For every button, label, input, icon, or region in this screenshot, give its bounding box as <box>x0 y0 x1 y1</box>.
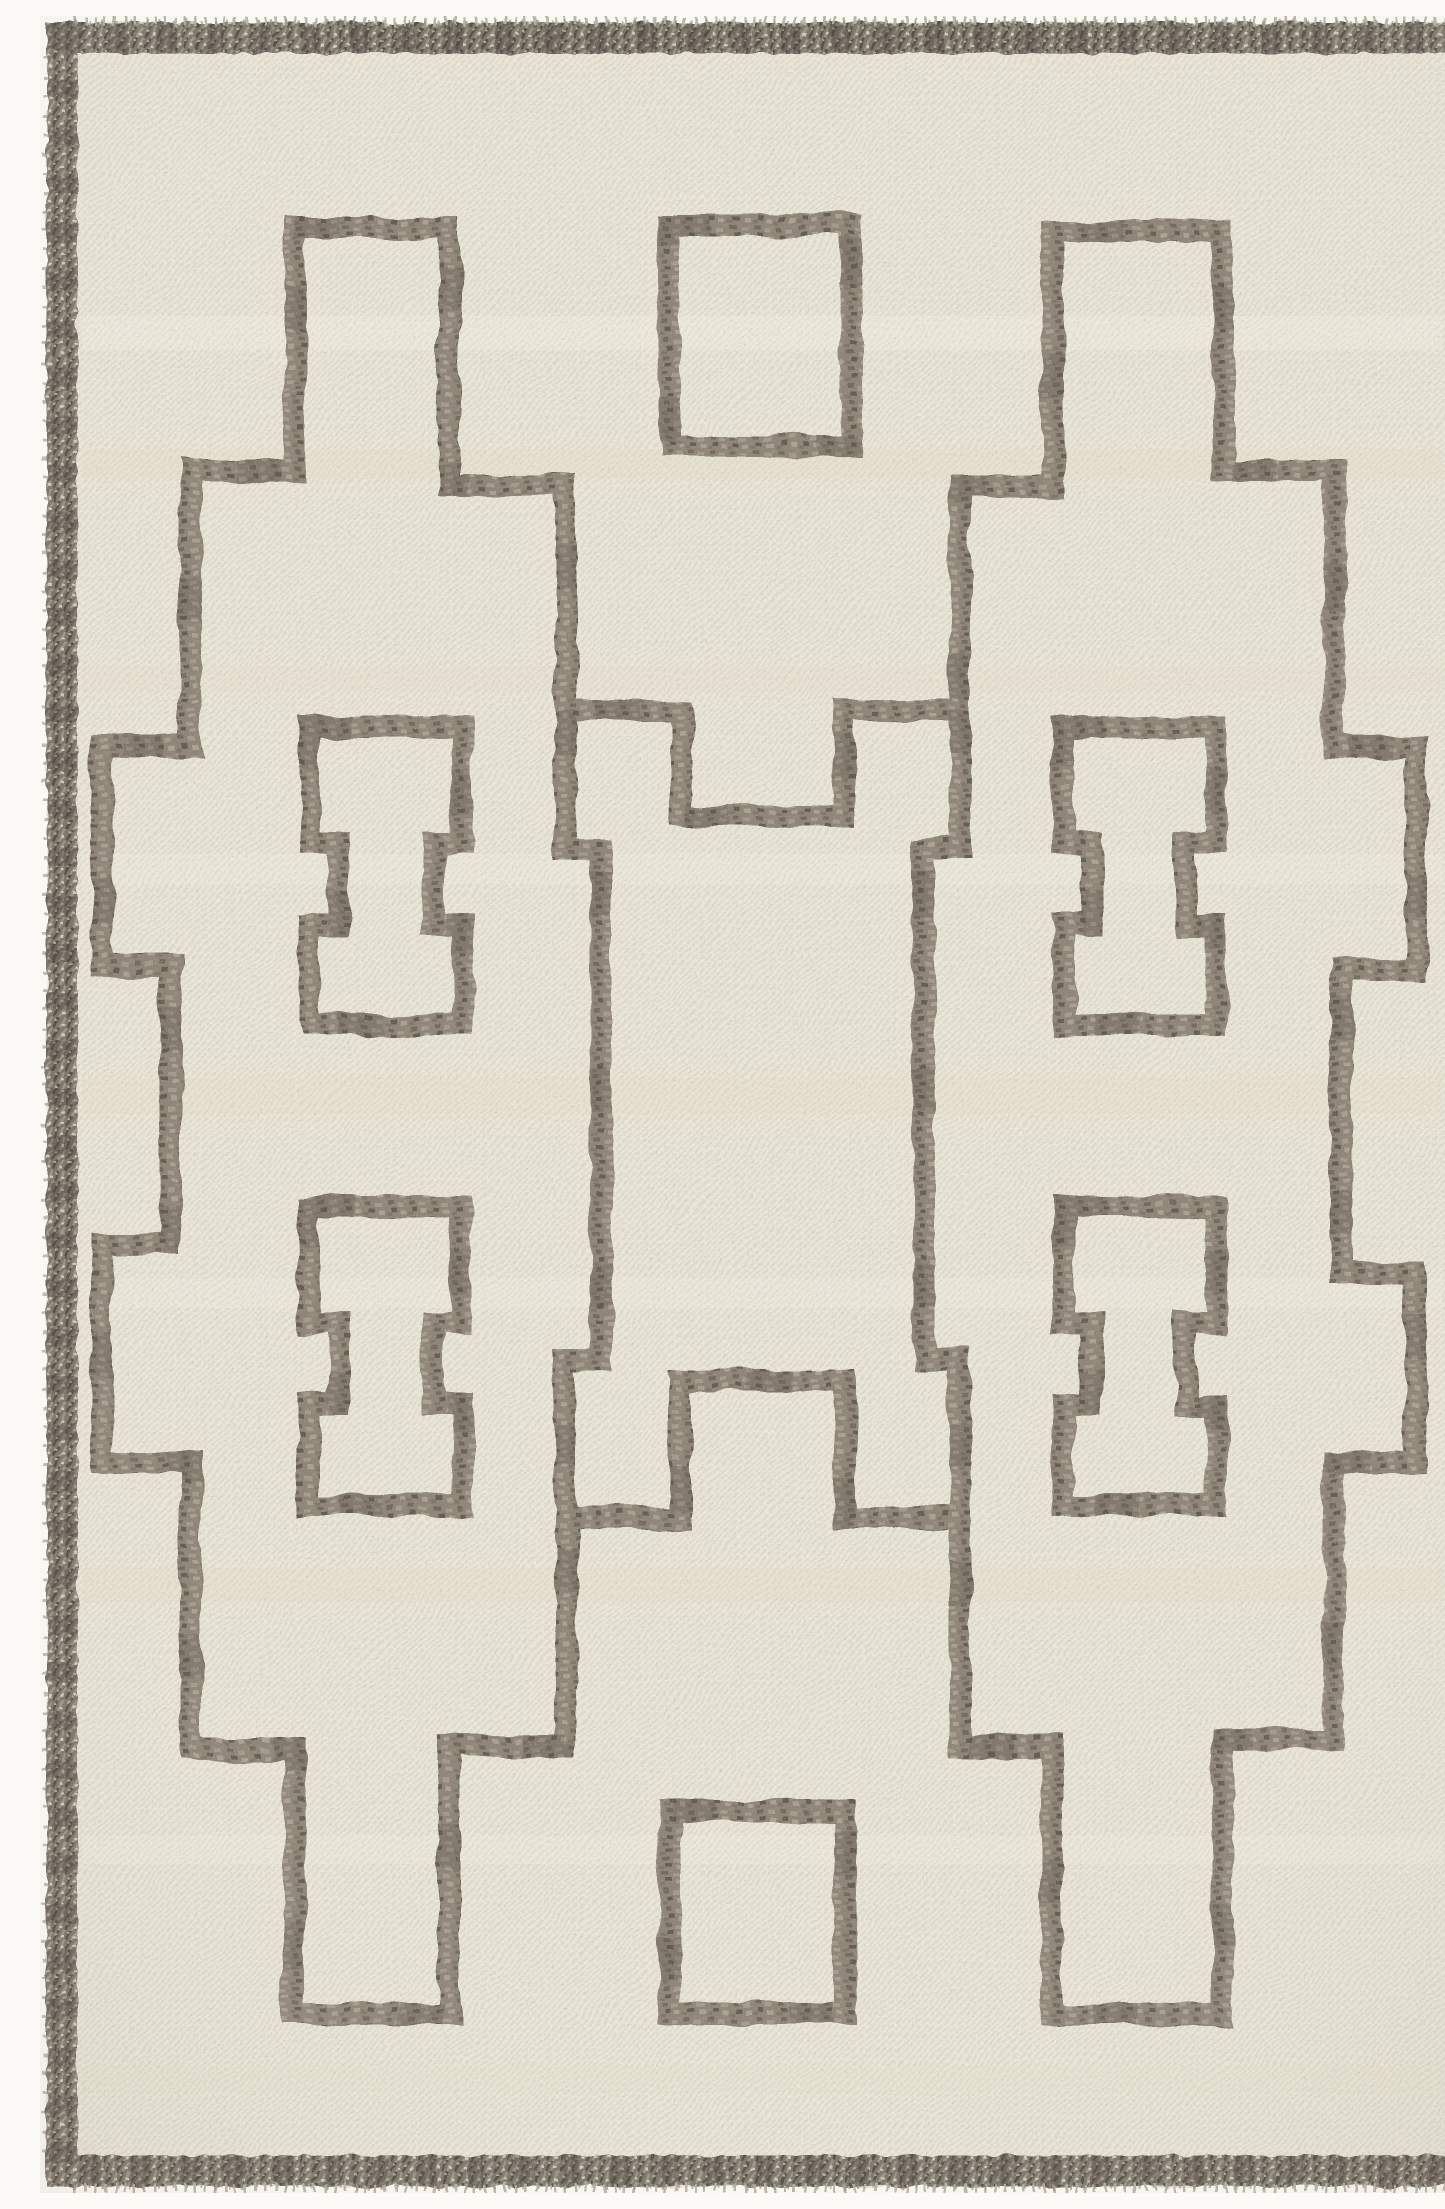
rug-image <box>40 16 1445 2193</box>
rug-product-photo <box>40 16 1445 2193</box>
vignette <box>40 16 1445 2193</box>
